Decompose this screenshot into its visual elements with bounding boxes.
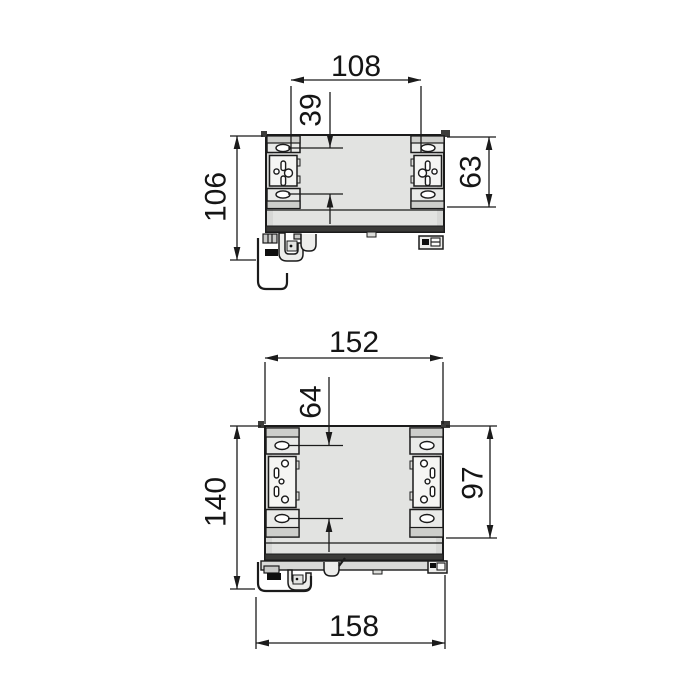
mounting-bracket-left xyxy=(266,428,299,537)
mounting-bracket-right xyxy=(410,428,443,537)
dim-label-slot-span: 108 xyxy=(331,50,381,83)
panel-bottom-band xyxy=(266,226,444,232)
dim-label-overall-height: 140 xyxy=(200,477,233,527)
mounting-bracket-left xyxy=(267,136,300,209)
dim-label-overall-width: 158 xyxy=(329,610,379,643)
panel-bottom-band xyxy=(265,554,443,560)
mounting-bracket-right xyxy=(411,136,444,209)
technical-drawing-canvas: 108 39 106 63 xyxy=(0,0,700,700)
dim-label-bracket-height: 97 xyxy=(457,466,490,499)
dim-label-overall-height: 106 xyxy=(200,172,233,222)
corner-tab-left xyxy=(258,421,264,428)
dim-label-slot-spacing: 39 xyxy=(295,93,328,126)
dim-label-bracket-height: 63 xyxy=(455,155,488,188)
dim-label-body-width: 152 xyxy=(329,326,379,359)
technical-drawing: 108 39 106 63 xyxy=(0,0,700,700)
dim-label-slot-spacing: 64 xyxy=(295,385,328,418)
